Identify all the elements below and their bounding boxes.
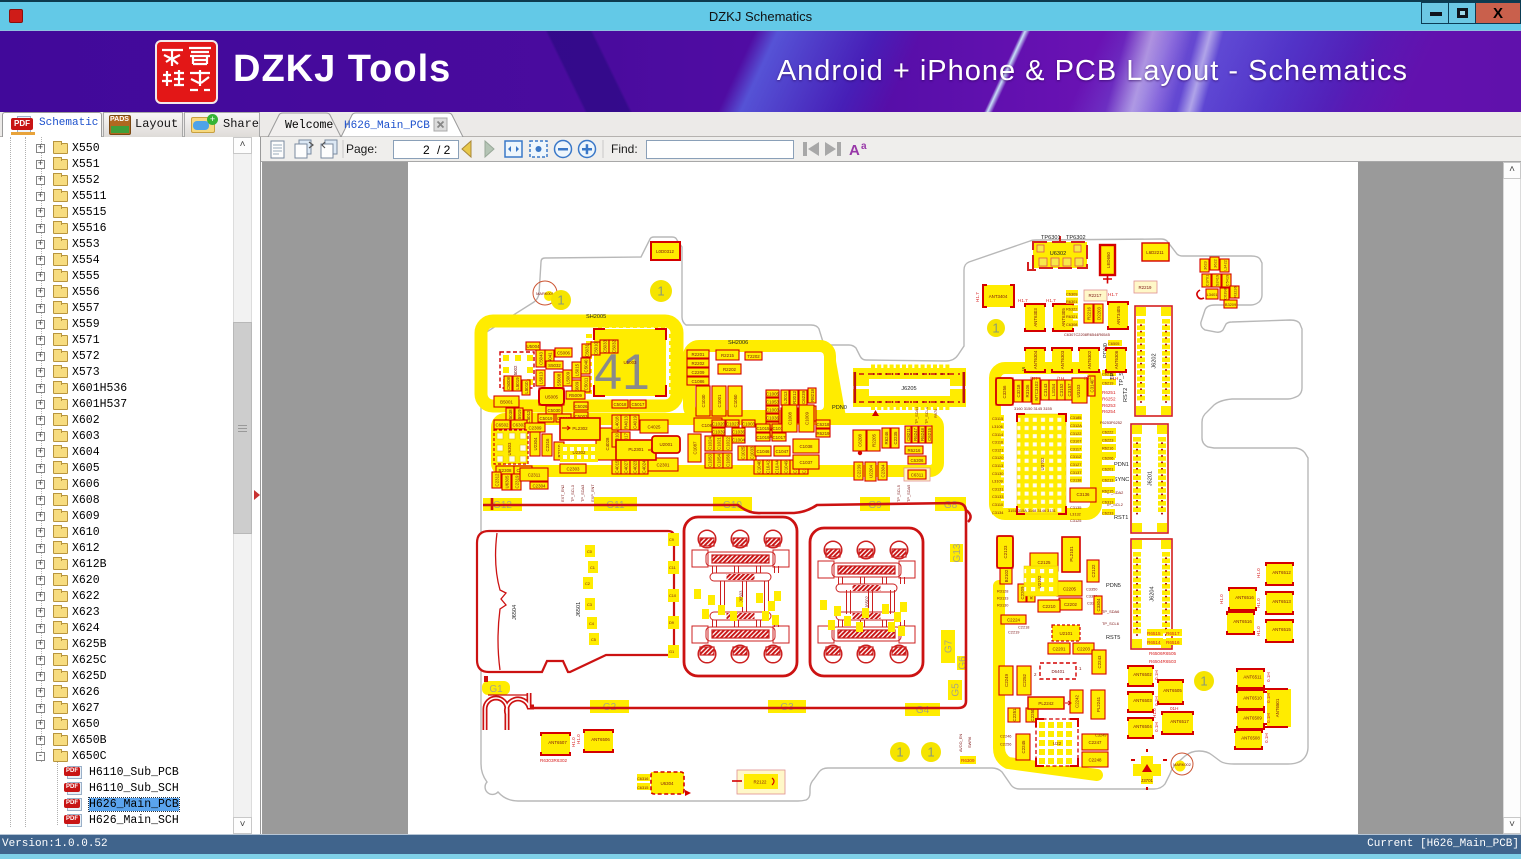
svg-text:MTC3102: MTC3102 <box>1034 381 1039 401</box>
svg-text:TP_SDA4: TP_SDA4 <box>914 406 919 424</box>
svg-text:C4028: C4028 <box>605 437 610 450</box>
svg-text:L0D0312: L0D0312 <box>656 249 674 254</box>
svg-text:G5: G5 <box>951 683 962 697</box>
svg-text:C3135: C3135 <box>1070 505 1081 510</box>
svg-text:C3117: C3117 <box>1070 446 1081 451</box>
svg-text:1: 1 <box>992 321 999 336</box>
svg-text:C2248: C2248 <box>1089 757 1102 762</box>
svg-text:C5: C5 <box>591 637 596 642</box>
svg-text:C3143: C3143 <box>1043 383 1048 396</box>
svg-text:C2245: C2245 <box>1021 740 1026 753</box>
svg-text:C6315: C6315 <box>637 785 648 790</box>
svg-text:C1053: C1053 <box>707 453 712 466</box>
svg-text:C2: C2 <box>585 581 590 586</box>
svg-text:3623: 3623 <box>1202 261 1207 270</box>
svg-text:C1050: C1050 <box>733 394 738 407</box>
svg-text:C6309: C6309 <box>1066 291 1077 296</box>
svg-text:MARK001: MARK001 <box>536 291 554 296</box>
svg-text:R8218: R8218 <box>810 388 815 401</box>
svg-text:C6213: C6213 <box>1102 477 1113 482</box>
svg-text:C1004: C1004 <box>732 437 745 442</box>
svg-text:A: A <box>849 142 860 159</box>
svg-text:ANT6508: ANT6508 <box>1241 736 1260 741</box>
svg-text:R2205: R2205 <box>871 433 876 446</box>
svg-text:C1049: C1049 <box>783 460 788 473</box>
svg-text:C2312: C2312 <box>494 473 499 486</box>
svg-text:TP_SDA6: TP_SDA6 <box>1102 609 1119 614</box>
svg-text:C3125: C3125 <box>1070 518 1081 523</box>
svg-text:C3218: C3218 <box>1016 384 1021 397</box>
svg-text:R4013: R4013 <box>623 415 628 428</box>
svg-text:H1.0: H1.0 <box>1256 626 1261 636</box>
svg-text:C6222: C6222 <box>1102 429 1113 434</box>
svg-text:C1087: C1087 <box>692 441 697 454</box>
svg-text:U6304: U6304 <box>661 781 674 786</box>
svg-text:C6307C2208R6544R6545: C6307C2208R6544R6545 <box>1064 332 1110 337</box>
svg-text:C5026: C5026 <box>575 404 588 409</box>
svg-text:H1.0: H1.0 <box>1256 598 1261 608</box>
svg-text:L3422: L3422 <box>1222 260 1227 271</box>
svg-text:R6216: R6216 <box>1102 445 1113 450</box>
svg-text:G7: G7 <box>944 639 955 653</box>
svg-text:C3256: C3256 <box>1002 385 1007 398</box>
svg-text:SH2006: SH2006 <box>728 340 748 346</box>
svg-text:C3131: C3131 <box>992 486 1003 491</box>
svg-text:ANT6516: ANT6516 <box>1233 619 1252 624</box>
svg-text:C0: C0 <box>587 549 593 554</box>
svg-text:C1025: C1025 <box>740 446 745 459</box>
svg-text:C3137: C3137 <box>1070 470 1081 475</box>
svg-text:J6501: J6501 <box>576 602 582 617</box>
svg-text:0.1H: 0.1H <box>1154 722 1159 732</box>
svg-text:1: 1 <box>1200 674 1207 689</box>
svg-text:C3133: C3133 <box>992 494 1003 499</box>
svg-text:C3116: C3116 <box>992 440 1003 445</box>
svg-text:C6239: C6239 <box>801 390 806 403</box>
svg-text:C1033: C1033 <box>749 446 754 459</box>
svg-text:ANT6505: ANT6505 <box>1163 688 1182 693</box>
svg-text:ANT6513: ANT6513 <box>1272 599 1291 604</box>
svg-text:G13: G13 <box>952 543 963 562</box>
svg-text:C1003: C1003 <box>742 421 755 426</box>
svg-text:ANT6507: ANT6507 <box>548 740 567 745</box>
svg-text:U5003: U5003 <box>624 360 637 365</box>
svg-text:R2122: R2122 <box>754 780 767 785</box>
svg-text:U5005: U5005 <box>545 394 558 399</box>
svg-text:C2304: C2304 <box>533 483 546 488</box>
svg-text:TP_SCL4: TP_SCL4 <box>924 406 929 424</box>
svg-text:C2311: C2311 <box>528 472 541 477</box>
svg-text:C1015: C1015 <box>757 426 770 431</box>
svg-text:C2256: C2256 <box>1000 742 1011 747</box>
svg-text:ANT6509: ANT6509 <box>1243 716 1262 721</box>
svg-text:RST2: RST2 <box>1123 388 1129 402</box>
svg-text:/1H: /1H <box>1111 376 1118 381</box>
svg-text:T2202: T2202 <box>747 354 760 359</box>
svg-text:C4027: C4027 <box>623 460 628 473</box>
svg-text:0.1H: 0.1H <box>1154 670 1159 680</box>
svg-text:C1037: C1037 <box>800 460 813 465</box>
svg-text:R6515: R6515 <box>1147 631 1161 636</box>
svg-text:H1.7: H1.7 <box>1046 298 1056 303</box>
svg-text:R3128: R3128 <box>997 589 1008 594</box>
svg-text:J6202: J6202 <box>1152 353 1158 368</box>
svg-text:ANT6511: ANT6511 <box>1243 675 1262 680</box>
svg-text:J6204: J6204 <box>1150 586 1156 601</box>
svg-text:J3701: J3701 <box>1141 778 1154 783</box>
svg-text:C1003: C1003 <box>766 407 779 412</box>
svg-text:C5010: C5010 <box>593 341 598 354</box>
svg-text:ANT6304: ANT6304 <box>1033 350 1038 369</box>
svg-text:1: 1 <box>927 745 934 760</box>
svg-text:R6517: R6517 <box>1166 631 1180 636</box>
svg-text:MARK002: MARK002 <box>1173 762 1191 767</box>
svg-text:C2247: C2247 <box>1089 740 1102 745</box>
svg-text:C9: C9 <box>669 537 674 542</box>
svg-text:R6504R6503: R6504R6503 <box>1149 659 1177 664</box>
svg-text:C3110: C3110 <box>992 502 1004 507</box>
svg-text:L3154: L3154 <box>1051 383 1056 396</box>
svg-text:C2202: C2202 <box>1064 602 1077 607</box>
svg-text:TP6302: TP6302 <box>1066 235 1086 241</box>
svg-text:PL2242: PL2242 <box>1038 701 1054 706</box>
svg-text:R6248: R6248 <box>920 427 925 440</box>
svg-text:C3140: C3140 <box>1089 379 1094 392</box>
svg-text:D6401: D6401 <box>1052 669 1065 674</box>
svg-text:C6303: C6303 <box>513 422 526 427</box>
svg-text:a: a <box>861 141 867 152</box>
svg-text:ANT6510: ANT6510 <box>1243 696 1262 701</box>
svg-text:U6305: U6305 <box>504 475 509 488</box>
svg-text:PDN1: PDN1 <box>1114 462 1129 468</box>
svg-text:ANT6517: ANT6517 <box>1170 719 1189 724</box>
svg-text:U3103: U3103 <box>1076 384 1081 397</box>
svg-text:R6246: R6246 <box>884 431 889 444</box>
svg-text:L4018: L4018 <box>614 416 619 429</box>
svg-text:C6223: C6223 <box>1102 437 1113 442</box>
svg-text:C6215: C6215 <box>927 427 932 440</box>
svg-text:J6503: J6503 <box>739 590 744 603</box>
svg-text:C1021: C1021 <box>716 436 721 449</box>
svg-text:R6516: R6516 <box>1166 640 1180 645</box>
svg-text:C1039: C1039 <box>712 429 725 434</box>
svg-text:C3136: C3136 <box>1077 492 1090 497</box>
svg-text:C2122: C2122 <box>1091 564 1096 577</box>
svg-text:C4024: C4024 <box>641 460 646 473</box>
svg-text:C5006: C5006 <box>557 350 570 355</box>
svg-text:C1022: C1022 <box>725 436 730 449</box>
svg-text:F6253F6252: F6253F6252 <box>1100 420 1122 425</box>
svg-text:C1046: C1046 <box>757 449 770 454</box>
svg-text:C3120: C3120 <box>992 455 1004 460</box>
svg-text:C1047: C1047 <box>776 449 789 454</box>
svg-text:D2203: D2203 <box>1096 306 1101 319</box>
svg-text:S5032: S5032 <box>548 363 561 368</box>
svg-text:R6514: R6514 <box>1147 640 1161 645</box>
svg-text:C1008: C1008 <box>787 411 792 424</box>
svg-text:R6253: R6253 <box>1102 403 1116 408</box>
svg-text:U2204: U2204 <box>868 464 873 477</box>
svg-text:C3138: C3138 <box>1070 478 1081 483</box>
svg-text:C312A: C312A <box>1070 423 1082 428</box>
svg-text:L2013: L2013 <box>783 391 788 404</box>
svg-text:LED650: LED650 <box>1106 252 1111 268</box>
svg-text:C1036: C1036 <box>732 429 745 434</box>
svg-text:C6208: C6208 <box>857 433 862 446</box>
svg-text:0.1H: 0.1H <box>1154 696 1159 706</box>
svg-text:C2252: C2252 <box>1022 673 1027 686</box>
svg-text:C3249: C3249 <box>1095 733 1106 738</box>
svg-text:C11: C11 <box>669 565 676 570</box>
svg-text:H626_Main_PCB: H626_Main_PCB <box>344 120 430 132</box>
svg-text:ANT6302: ANT6302 <box>1087 350 1092 369</box>
svg-text:C5017: C5017 <box>632 402 645 407</box>
svg-text:3622: 3622 <box>1212 259 1217 268</box>
svg-text:R2219: R2219 <box>1139 285 1152 290</box>
svg-text:U2102: U2102 <box>1037 575 1042 588</box>
svg-text:D9: D9 <box>669 620 674 625</box>
svg-text:C2246: C2246 <box>1000 734 1011 739</box>
svg-text:C3157: C3157 <box>1067 383 1072 396</box>
svg-text:C1020: C1020 <box>712 421 725 426</box>
svg-text:C2243: C2243 <box>1097 655 1102 668</box>
svg-text:C1086: C1086 <box>692 379 705 384</box>
svg-text:ANT6303: ANT6303 <box>1060 350 1065 369</box>
svg-text:C5019: C5019 <box>540 416 553 421</box>
svg-text:L5013: L5013 <box>538 371 543 384</box>
svg-text:R6322: R6322 <box>1066 307 1077 312</box>
svg-text:C2123: C2123 <box>1003 545 1008 558</box>
svg-text:C1027: C1027 <box>726 421 739 426</box>
svg-text:U3702: U3702 <box>1040 457 1045 470</box>
svg-text:R6254: R6254 <box>1102 409 1116 414</box>
svg-text:1: 1 <box>657 284 664 299</box>
svg-text:C6311: C6311 <box>911 473 924 478</box>
svg-text:C5419: C5419 <box>1224 275 1229 286</box>
svg-text:TP_SCL3: TP_SCL3 <box>570 485 575 502</box>
svg-text:1: 1 <box>1079 666 1082 671</box>
svg-text:ANT6502: ANT6502 <box>1133 672 1152 677</box>
svg-text:R6321: R6321 <box>1066 314 1077 319</box>
svg-text:C3134: C3134 <box>992 510 1004 515</box>
svg-text:C6219: C6219 <box>1102 380 1113 385</box>
svg-text:C5031: C5031 <box>584 343 589 356</box>
svg-text:C6313: C6313 <box>1102 499 1113 504</box>
svg-text:C4: C4 <box>589 621 595 626</box>
svg-text:C5032: C5032 <box>611 339 616 352</box>
svg-text:/1H: /1H <box>1057 376 1064 381</box>
svg-text:C6218: C6218 <box>817 422 830 427</box>
svg-text:RST5: RST5 <box>1106 635 1120 641</box>
svg-text:ANT3405: ANT3405 <box>1116 306 1121 325</box>
svg-text:PL2301: PL2301 <box>628 447 644 452</box>
svg-text:R2202: R2202 <box>692 361 705 366</box>
svg-text:C4019: C4019 <box>632 415 637 428</box>
svg-text:TP_SDA5: TP_SDA5 <box>906 485 911 502</box>
svg-text:S5008: S5008 <box>556 373 561 386</box>
svg-text:R3236: R3236 <box>1232 286 1237 297</box>
svg-text:R2201: R2201 <box>692 352 705 357</box>
svg-text:C2224: C2224 <box>1007 617 1020 622</box>
svg-text:C2125: C2125 <box>1038 560 1051 565</box>
svg-text:ANT6504: ANT6504 <box>1133 724 1152 729</box>
svg-text:J6201: J6201 <box>1148 471 1154 486</box>
svg-text:R5009: R5009 <box>569 393 582 398</box>
svg-text:J6504: J6504 <box>512 605 518 620</box>
svg-text:EXT_EN2: EXT_EN2 <box>560 485 565 502</box>
svg-text:R6247: R6247 <box>913 427 918 440</box>
svg-text:C2301: C2301 <box>657 462 670 467</box>
svg-text:C4015: C4015 <box>614 460 619 473</box>
svg-text:C3112: C3112 <box>1070 454 1081 459</box>
svg-text:R3130: R3130 <box>997 603 1009 608</box>
svg-text:U2101: U2101 <box>1060 631 1073 636</box>
svg-text:TP_SCL6: TP_SCL6 <box>1102 621 1119 626</box>
svg-text:C3107: C3107 <box>1070 439 1081 444</box>
svg-text:R2012: R2012 <box>792 390 797 403</box>
svg-text:C1009: C1009 <box>804 411 809 424</box>
svg-text:1: 1 <box>557 293 564 308</box>
svg-text:TP_SCL5: TP_SCL5 <box>896 485 901 502</box>
svg-text:C4023: C4023 <box>632 460 637 473</box>
svg-text:L5015: L5015 <box>574 363 579 376</box>
svg-text:U2001: U2001 <box>660 442 673 447</box>
svg-text:ANT6503: ANT6503 <box>1133 698 1152 703</box>
svg-text:C6306: C6306 <box>911 458 924 463</box>
svg-text:SWR6: SWR6 <box>967 737 972 748</box>
svg-text:U5004: U5004 <box>527 344 540 349</box>
svg-text:C1: C1 <box>590 565 595 570</box>
svg-text:H1.7: H1.7 <box>1018 298 1028 303</box>
svg-text:H1.0: H1.0 <box>576 734 581 744</box>
svg-text:C2316: C2316 <box>545 438 550 451</box>
svg-text:C8211: C8211 <box>906 428 911 441</box>
svg-text:C2242: C2242 <box>1074 694 1079 707</box>
svg-text:B3209: B3209 <box>1225 302 1236 307</box>
svg-text:0.1H: 0.1H <box>1266 713 1271 723</box>
svg-text:C2203: C2203 <box>1077 646 1090 651</box>
svg-text:C2304: C2304 <box>880 464 885 477</box>
svg-text:C3127: C3127 <box>1070 462 1081 467</box>
svg-text:C5040: C5040 <box>583 359 588 372</box>
svg-text:B2102: B2102 <box>1004 569 1009 582</box>
svg-text:ANT3404: ANT3404 <box>989 294 1008 299</box>
svg-text:C6316: C6316 <box>637 776 648 781</box>
svg-text:C2201: C2201 <box>1053 646 1066 651</box>
svg-text:C2219: C2219 <box>1008 630 1019 635</box>
svg-text:PDN0: PDN0 <box>832 405 847 411</box>
svg-text:C5030: C5030 <box>548 408 561 413</box>
svg-text:R6303R6302: R6303R6302 <box>540 758 568 763</box>
svg-text:R6215: R6215 <box>1102 488 1113 493</box>
svg-text:C2239: C2239 <box>856 464 861 477</box>
svg-text:G1: G1 <box>489 684 503 695</box>
svg-text:C1036: C1036 <box>766 415 779 420</box>
svg-text:R970: R970 <box>933 408 938 418</box>
svg-text:B5001: B5001 <box>500 399 513 404</box>
svg-text:Welcome: Welcome <box>285 119 333 132</box>
svg-text:ANT6306: ANT6306 <box>1114 350 1119 369</box>
svg-text:C1024: C1024 <box>707 436 712 449</box>
svg-text:ANT6506: ANT6506 <box>591 737 610 742</box>
svg-text:C1040: C1040 <box>756 460 761 473</box>
svg-text:2: 2 <box>1034 672 1037 677</box>
svg-text:PL2101: PL2101 <box>1069 546 1074 562</box>
svg-text:C2309: C2309 <box>529 425 542 430</box>
svg-text:C3130: C3130 <box>992 471 1004 476</box>
svg-text:L3401: L3401 <box>1207 292 1218 297</box>
svg-text:C4025: C4025 <box>648 424 661 429</box>
svg-text:0.1H: 0.1H <box>1266 693 1271 703</box>
svg-text:ANT6501: ANT6501 <box>1275 698 1280 717</box>
svg-text:C1005: C1005 <box>766 391 779 396</box>
svg-text:0.1H: 0.1H <box>1266 672 1271 682</box>
svg-text:C1017: C1017 <box>773 435 786 440</box>
svg-text:C3701: C3701 <box>1204 275 1209 286</box>
svg-text:ANT6516: ANT6516 <box>1235 595 1254 600</box>
svg-text:U2304: U2304 <box>533 437 538 450</box>
svg-text:R2202: R2202 <box>723 367 736 372</box>
svg-text:C10A4: C10A4 <box>774 460 779 474</box>
svg-text:L3132: L3132 <box>1070 512 1081 517</box>
svg-text:C1001: C1001 <box>717 394 722 407</box>
svg-text:C5011: C5011 <box>583 377 588 390</box>
svg-text:RST1: RST1 <box>1114 515 1128 521</box>
svg-text:U2302: U2302 <box>573 450 586 455</box>
svg-text:C10: C10 <box>669 593 677 598</box>
svg-text:C1056: C1056 <box>725 453 730 466</box>
svg-text:C3115: C3115 <box>992 416 1003 421</box>
svg-text:C3121: C3121 <box>992 447 1003 452</box>
svg-text:C6398: C6398 <box>1222 288 1227 299</box>
svg-text:C1019: C1019 <box>757 435 770 440</box>
svg-text:L5009: L5009 <box>565 371 570 384</box>
svg-text:SH2005: SH2005 <box>586 314 606 320</box>
svg-text:C5008: C5008 <box>506 376 511 389</box>
svg-text:C1053: C1053 <box>766 399 779 404</box>
svg-text:R2216: R2216 <box>1086 306 1091 319</box>
svg-text:TP6301: TP6301 <box>1041 235 1061 241</box>
svg-text:ANT6512: ANT6512 <box>1272 570 1291 575</box>
svg-text:C6233: C6233 <box>1102 510 1113 515</box>
svg-text:C2249: C2249 <box>1004 673 1009 686</box>
svg-text:C2210: C2210 <box>1043 604 1056 609</box>
svg-text:C3114: C3114 <box>992 432 1004 437</box>
svg-text:ANT6515: ANT6515 <box>1272 627 1291 632</box>
svg-text:U6303: U6303 <box>507 442 512 455</box>
svg-text:R6219: R6219 <box>817 431 830 436</box>
svg-text:L3106: L3106 <box>992 424 1003 429</box>
svg-text:TP_SDA3: TP_SDA3 <box>580 485 585 502</box>
svg-text:C1030: C1030 <box>701 394 706 407</box>
svg-text:C6308: C6308 <box>1066 322 1077 327</box>
svg-text:/1H: /1H <box>1030 376 1037 381</box>
svg-text:J6205: J6205 <box>901 386 916 392</box>
svg-text:H1.0: H1.0 <box>1256 568 1261 578</box>
svg-text:01H: 01H <box>1170 706 1178 711</box>
svg-text:H1.7: H1.7 <box>975 292 980 302</box>
svg-text:C10A2: C10A2 <box>765 460 770 474</box>
svg-text:R2217: R2217 <box>1089 293 1102 298</box>
svg-text:C2218: C2218 <box>1018 625 1029 630</box>
svg-text:C2250: C2250 <box>1030 708 1035 721</box>
svg-text:U6302: U6302 <box>1050 251 1066 257</box>
svg-text:0.1H: 0.1H <box>1264 733 1269 743</box>
svg-text:R6506R6505: R6506R6505 <box>1149 651 1177 656</box>
svg-text:G8: G8 <box>944 500 958 511</box>
svg-text:H1.7: H1.7 <box>1108 292 1118 297</box>
svg-text:R6309: R6309 <box>961 758 975 763</box>
